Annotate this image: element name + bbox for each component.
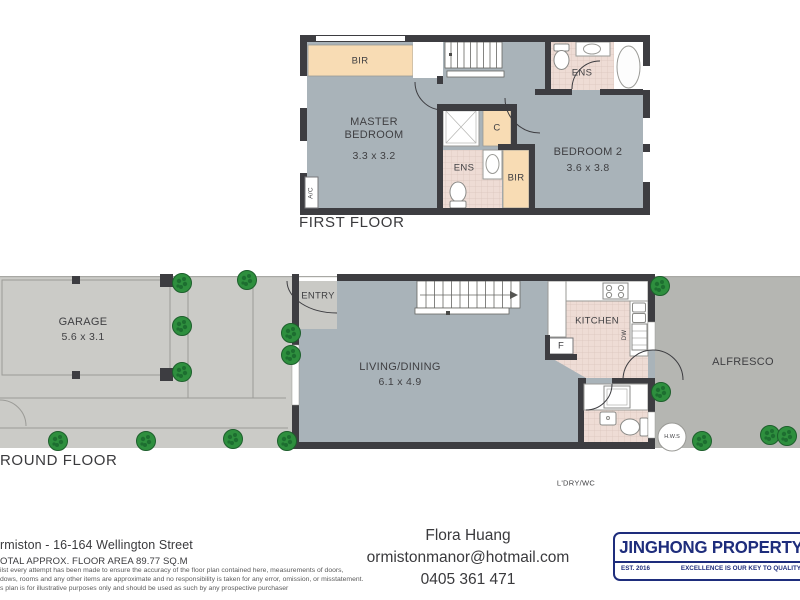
agent-phone: 0405 361 471: [367, 569, 570, 591]
agency-logo: JINGHONG PROPERTY EST. 2016 EXCELLENCE I…: [613, 532, 800, 581]
disclaimer-text: ilst every attempt has been made to ensu…: [0, 567, 363, 593]
hot-water-label: H.W.S: [664, 434, 680, 440]
alfresco-label: ALFRESCO: [712, 356, 774, 368]
entry-label: ENTRY: [301, 291, 335, 302]
ens-mid-label: ENS: [454, 163, 474, 174]
agency-logo-slogan: EXCELLENCE IS OUR KEY TO QUALITY: [681, 565, 800, 572]
toilet-icon: [450, 182, 466, 208]
laundry-tub-icon: [584, 384, 648, 410]
ground-floor-title: ROUND FLOOR: [0, 452, 117, 469]
fridge-label: F: [558, 341, 564, 352]
vanity-sink-icon: [576, 42, 610, 56]
first-floor-title: FIRST FLOOR: [299, 214, 405, 231]
wc-toilet-icon: [621, 418, 649, 436]
dishwasher-label: DW: [622, 330, 628, 341]
agency-logo-tagline-row: EST. 2016 EXCELLENCE IS OUR KEY TO QUALI…: [615, 561, 800, 572]
ens-top-label: ENS: [572, 68, 592, 79]
living-dining-dims: 6.1 x 4.9: [379, 376, 422, 388]
dishwasher-icon: [632, 324, 647, 350]
agency-logo-established: EST. 2016: [621, 565, 650, 572]
bir-top-label: BIR: [352, 56, 369, 67]
stairs-icon: [445, 42, 504, 77]
agency-logo-brand: JINGHONG PROPERTY: [619, 534, 800, 558]
closet-label: C: [493, 123, 500, 134]
garage-dims: 5.6 x 3.1: [62, 331, 105, 343]
shower-icon: [443, 108, 479, 146]
master-bedroom-label-1: MASTER: [350, 116, 398, 128]
property-address: rmiston - 16-164 Wellington Street: [0, 538, 193, 552]
vanity-sink-icon: [483, 150, 502, 179]
disclaimer-line-2: dows, rooms and any other items are appr…: [0, 576, 363, 585]
laundry-wc-label: L'DRY/WC: [557, 479, 595, 488]
master-bedroom-dims: 3.3 x 3.2: [353, 150, 396, 162]
master-bedroom-label-2: BEDROOM: [345, 129, 404, 141]
agent-contact-block: Flora Huang ormistonmanor@hotmail.com 04…: [367, 525, 570, 591]
stove-icon: [603, 283, 628, 299]
disclaimer-line-1: ilst every attempt has been made to ensu…: [0, 567, 363, 576]
kitchen-label: KITCHEN: [575, 316, 619, 327]
garage-label: GARAGE: [59, 316, 108, 328]
stairs-icon: [415, 281, 520, 315]
driveway-concrete: [0, 277, 296, 448]
floorplan-page: BIR MASTER BEDROOM 3.3 x 3.2 C ENS BIR E…: [0, 0, 800, 600]
agent-email: ormistonmanor@hotmail.com: [367, 547, 570, 569]
wc-basin-icon: [600, 412, 616, 425]
bedroom2-label: BEDROOM 2: [554, 146, 623, 158]
bedroom2-dims: 3.6 x 3.8: [567, 162, 610, 174]
bathtub-icon: [614, 42, 643, 92]
disclaimer-line-3: s plan is for illustrative purposes only…: [0, 585, 363, 594]
floor-area-note: OTAL APPROX. FLOOR AREA 89.77 SQ.M: [0, 556, 188, 567]
toilet-icon: [554, 44, 569, 70]
agent-name: Flora Huang: [367, 525, 570, 547]
ac-label: A/C: [308, 187, 315, 199]
living-dining-label: LIVING/DINING: [359, 361, 441, 373]
stair-void: [413, 42, 443, 78]
bir-mid-label: BIR: [508, 173, 525, 184]
